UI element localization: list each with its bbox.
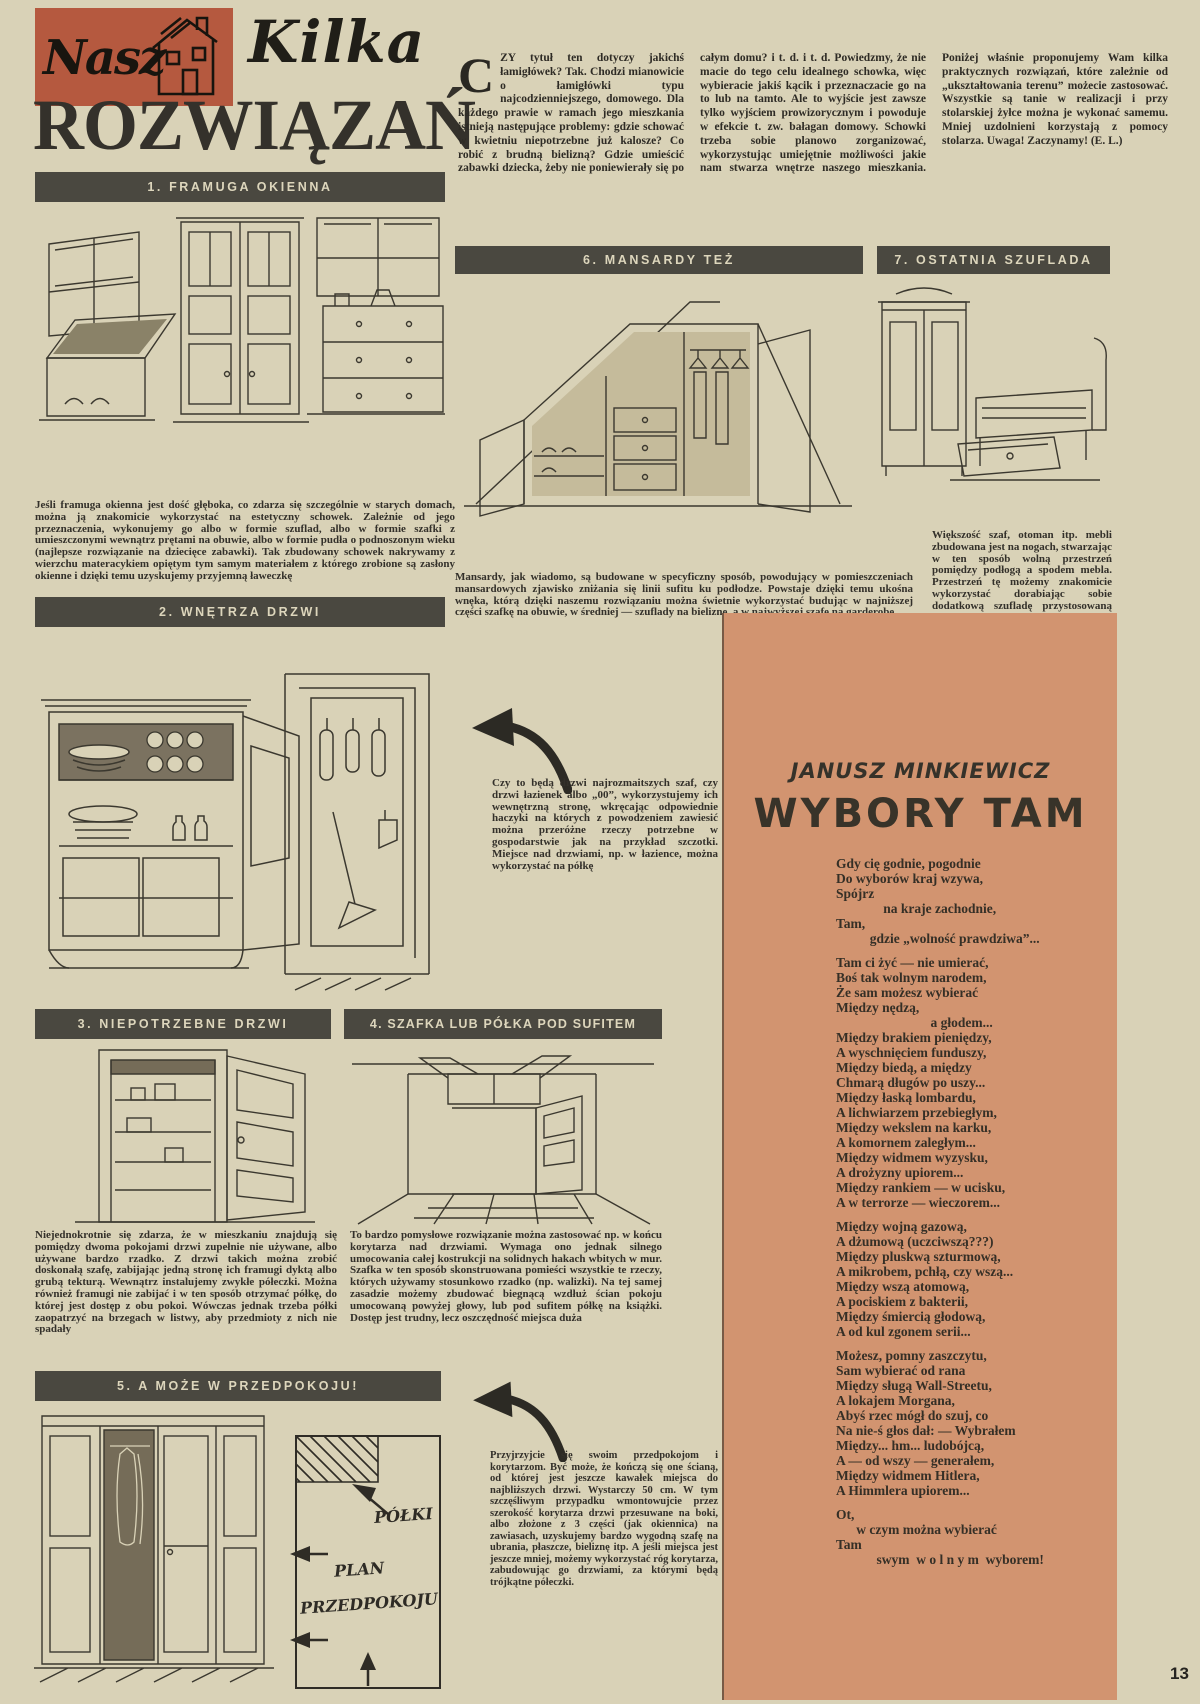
illustration-mansard-wardrobe	[458, 280, 858, 520]
caption-section-3: Niejednokrotnie się zdarza, że w mieszka…	[35, 1230, 337, 1336]
section-bar-5: 5. A MOŻE W PRZEDPOKOJU!	[35, 1371, 441, 1401]
plan-label-line1: PLAN	[333, 1558, 385, 1580]
magazine-page: Nasz Kilka ROZWIĄZAŃ CZY tytuł ten dotyc…	[0, 0, 1200, 1704]
poem-stanza: Możesz, pomny zaszczytu, Sam wybierać od…	[836, 1348, 1106, 1498]
section-bar-3: 3. NIEPOTRZEBNE DRZWI	[35, 1009, 331, 1039]
caption-section-4: To bardzo pomysłowe rozwiązanie można za…	[350, 1230, 662, 1324]
poem-title: WYBORY TAM	[724, 791, 1117, 837]
poem-panel: JANUSZ MINKIEWICZ WYBORY TAM Gdy cię god…	[722, 613, 1117, 1700]
drop-cap: C	[458, 54, 494, 96]
masthead-main-title: ROZWIĄZAŃ	[33, 86, 437, 164]
page-number: 13	[1170, 1664, 1189, 1684]
poem-body: Gdy cię godnie, pogodnie Do wyborów kraj…	[836, 856, 1106, 1576]
intro-body: ZY tytuł ten dotyczy jakichś łamigłówek?…	[458, 52, 1168, 174]
floor-plan-drawing	[282, 1402, 454, 1698]
illustration-unused-door	[35, 1044, 335, 1226]
author-initials: (E. L.)	[1091, 135, 1123, 147]
section-bar-1: 1. FRAMUGA OKIENNA	[35, 172, 445, 202]
caption-section-2: Czy to będą drzwi najrozmaitszych szaf, …	[492, 778, 718, 872]
poem-stanza: Gdy cię godnie, pogodnie Do wyborów kraj…	[836, 856, 1106, 946]
illustration-ceiling-cabinet	[344, 1044, 662, 1226]
masthead-script-title: Kilka	[248, 8, 425, 76]
poem-stanza: Między wojną gazową, A dżumową (uczciwsz…	[836, 1219, 1106, 1339]
illustration-hallway-wardrobe	[30, 1406, 278, 1696]
illustration-window-recess	[35, 208, 447, 494]
intro-text: CZY tytuł ten dotyczy jakichś łamigłówek…	[458, 52, 1168, 250]
section-bar-4: 4. SZAFKA LUB PÓŁKA POD SUFITEM	[344, 1009, 662, 1039]
illustration-bed-drawer	[872, 280, 1112, 485]
floor-plan-diagram: PÓŁKI PLAN PRZEDPOKOJU	[282, 1402, 454, 1698]
poem-stanza: Ot, w czym można wybierać Tam swym w o l…	[836, 1507, 1106, 1567]
section-bar-2: 2. WNĘTRZA DRZWI	[35, 597, 445, 627]
caption-section-5: Przyjrzyjcie się swoim przedpokojom i ko…	[490, 1450, 718, 1588]
caption-section-1: Jeśli framuga okienna jest dość głęboka,…	[35, 500, 455, 583]
illustration-door-interiors	[33, 634, 447, 1006]
section-bar-6: 6. MANSARDY TEŻ	[455, 246, 863, 274]
caption-section-7: Większość szaf, otoman itp. mebli zbudow…	[932, 530, 1112, 624]
section-bar-7: 7. OSTATNIA SZUFLADA	[877, 246, 1110, 274]
poem-author: JANUSZ MINKIEWICZ	[724, 759, 1117, 783]
poem-stanza: Tam ci żyć — nie umierać, Boś tak wolnym…	[836, 955, 1106, 1210]
